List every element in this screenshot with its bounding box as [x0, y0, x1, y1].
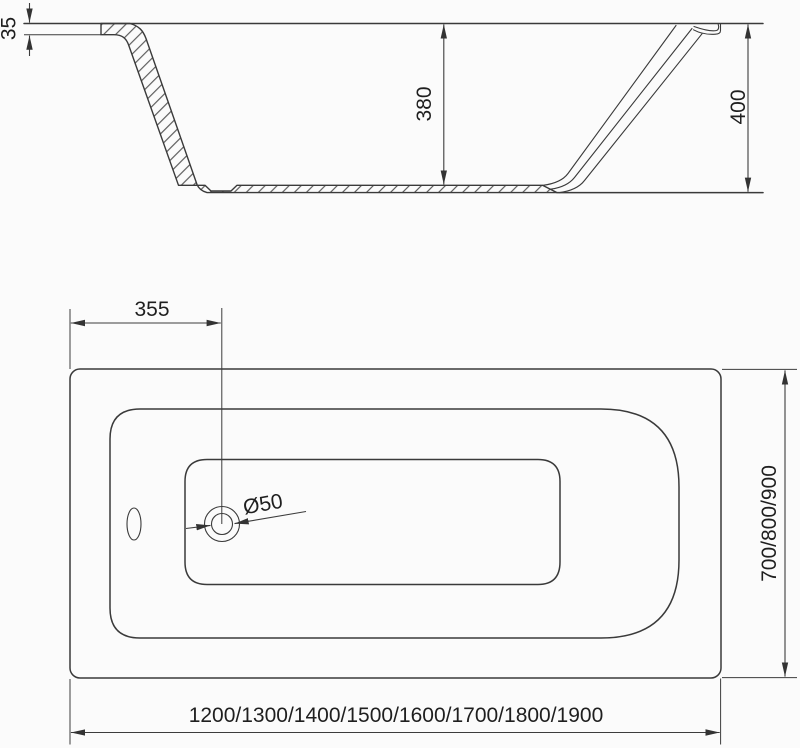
dim-length-options-label: 1200/1300/1400/1500/1600/1700/1800/1900	[189, 704, 604, 727]
side-view: 35 380 400	[0, 3, 763, 193]
dim-length-options: 1200/1300/1400/1500/1600/1700/1800/1900	[70, 679, 721, 745]
right-rim-cap	[694, 24, 721, 34]
overflow-hole	[127, 508, 141, 540]
tub-right-wall-lines	[543, 26, 702, 193]
dim-width-options: 700/800/900	[722, 369, 797, 677]
dim-total-height-label: 400	[727, 89, 750, 124]
dim-drain-diameter-label: Ø50	[241, 490, 284, 520]
right-wall-line-outer	[559, 34, 702, 193]
dim-rim-height: 35	[0, 3, 30, 56]
dim-inner-depth: 380	[413, 24, 444, 184]
dim-drain-offset-label: 355	[134, 298, 169, 321]
drawing-canvas: 35 380 400	[0, 0, 800, 748]
dim-rim-height-label: 35	[0, 17, 21, 40]
dim-inner-depth-label: 380	[413, 86, 436, 121]
right-wall-line-inner	[543, 26, 676, 186]
dim-width-options-label: 700/800/900	[758, 465, 781, 582]
right-wall-line-middle	[551, 29, 693, 190]
dim-drain-offset: 355	[70, 298, 222, 524]
right-rim-inner-curve	[694, 24, 719, 31]
bathtub-technical-drawing: 35 380 400	[0, 0, 800, 748]
tub-wall-floor-section	[101, 24, 557, 193]
dim-d50-left-arrow	[186, 525, 211, 528]
dim-total-height: 400	[727, 24, 750, 191]
top-view: 355 Ø50 700/800/900 1200/1300/1400/150	[70, 298, 797, 745]
right-rim-curl	[694, 24, 721, 34]
tub-inner-rim-edge	[110, 409, 679, 638]
tub-outer-edge	[70, 369, 721, 678]
